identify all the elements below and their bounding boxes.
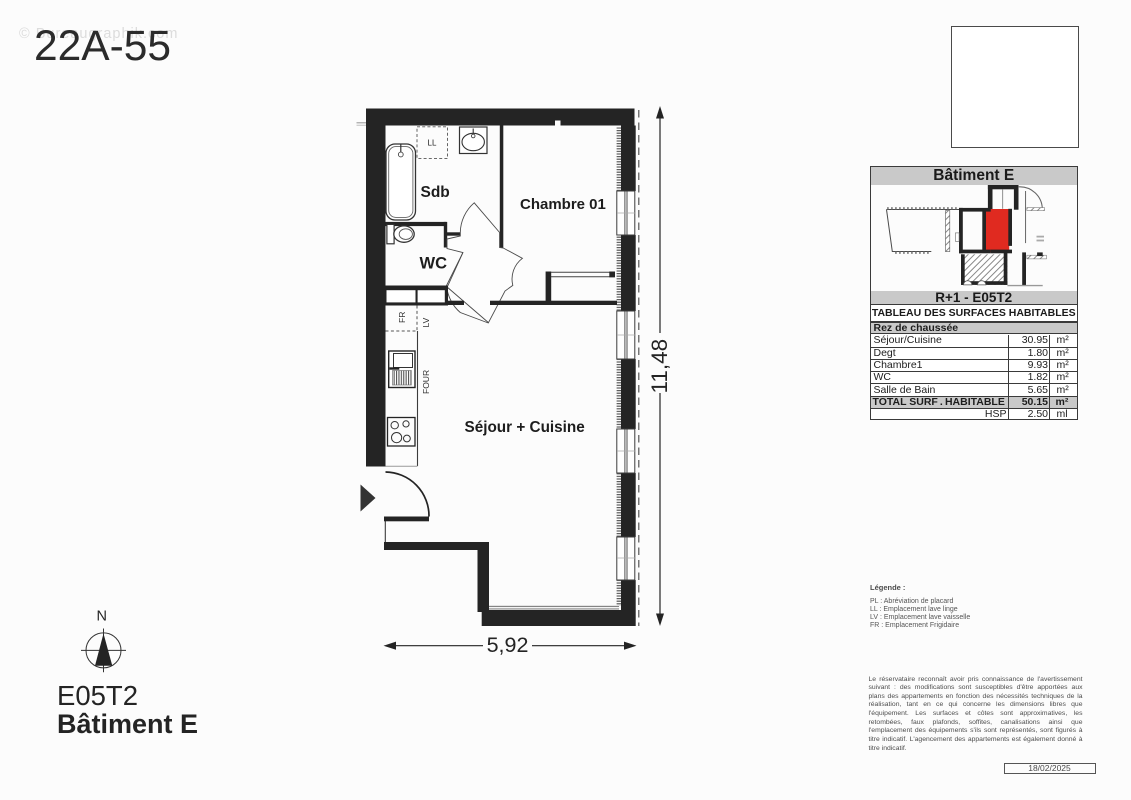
svg-text:5,92: 5,92 xyxy=(487,633,529,657)
svg-text:N: N xyxy=(97,609,107,625)
svg-text:Sdb: Sdb xyxy=(421,184,450,201)
svg-text:11,48: 11,48 xyxy=(647,339,672,394)
svg-text:FOUR: FOUR xyxy=(421,370,431,394)
svg-text:LL: LL xyxy=(428,139,437,148)
svg-text:LV: LV xyxy=(421,317,431,327)
svg-text:Séjour + Cuisine: Séjour + Cuisine xyxy=(465,419,585,436)
svg-text:Chambre 01: Chambre 01 xyxy=(520,196,606,213)
svg-text:FR: FR xyxy=(397,312,407,323)
svg-text:WC: WC xyxy=(420,255,448,273)
